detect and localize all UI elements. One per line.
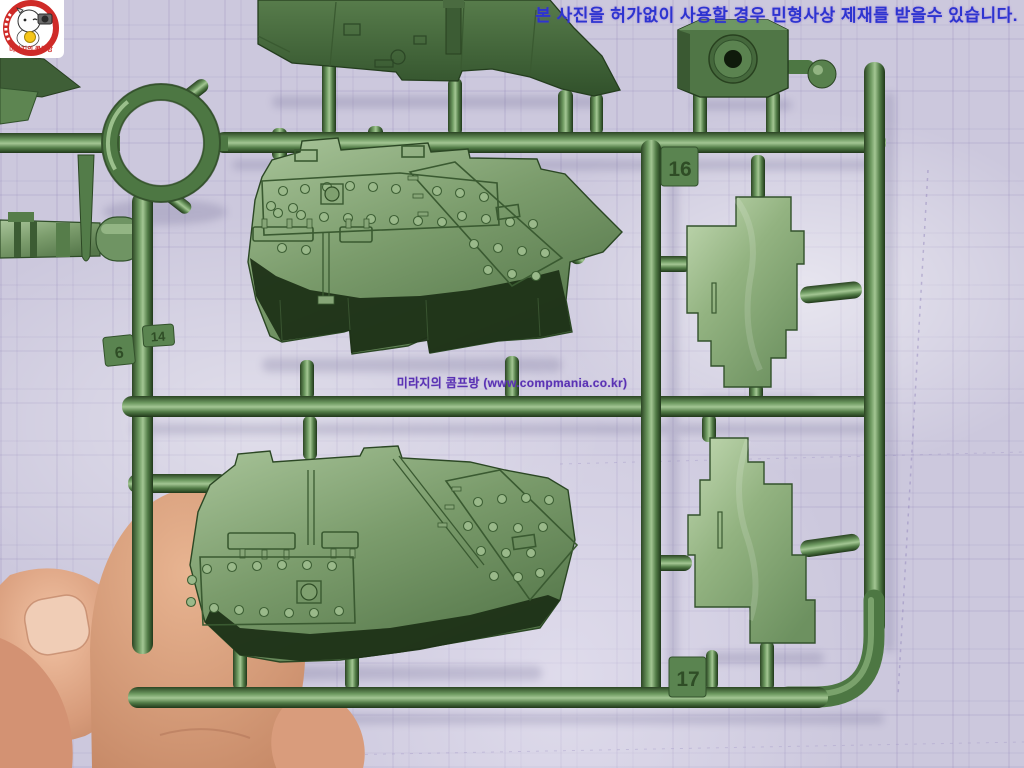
watermark-text: 미라지의 콤프방 (www.compmania.co.kr) xyxy=(397,374,628,391)
logo-graphic: 미라지의 콤프방 xyxy=(0,0,64,58)
runner-middle-horizontal xyxy=(122,396,884,417)
runner-left-horizontal xyxy=(0,133,112,153)
tag-14-label: 14 xyxy=(150,328,166,344)
ring-part xyxy=(89,71,234,217)
tag-17-label: 17 xyxy=(676,668,699,691)
logo-medal xyxy=(25,32,36,43)
part-number-tag-17: 17 xyxy=(669,657,706,697)
logo-mascot-head xyxy=(18,10,40,32)
part-number-tag-14: 14 xyxy=(142,324,174,347)
part-number-tag-6: 6 xyxy=(103,335,136,367)
part-number-tag-16: 16 xyxy=(661,147,698,186)
logo-text: 미라지의 콤프방 xyxy=(9,44,53,53)
ball-joint xyxy=(808,60,836,88)
runner-right-vertical xyxy=(864,62,885,636)
part-hull-side-upper xyxy=(248,138,622,354)
logo-badge: 미라지의 콤프방 xyxy=(0,0,64,58)
part-hull-side-lower xyxy=(187,446,578,662)
runner-midright-vertical xyxy=(641,140,661,700)
tag-16-label: 16 xyxy=(668,158,691,181)
part-left-edge-barrel xyxy=(0,212,144,261)
part-left-edge-wedge xyxy=(0,54,80,124)
copyright-warning-text: 본 사진을 허가없이 사용할 경우 민형사상 제재를 받을수 있습니다. xyxy=(8,1,1018,26)
part-armor-plate-lower xyxy=(688,438,815,643)
part-turret-box xyxy=(678,20,836,97)
part-armor-plate-upper xyxy=(687,197,804,387)
tag-6-label: 6 xyxy=(114,345,125,363)
runner-left-vertical xyxy=(132,192,153,654)
runner-bottom-horizontal xyxy=(128,687,828,708)
